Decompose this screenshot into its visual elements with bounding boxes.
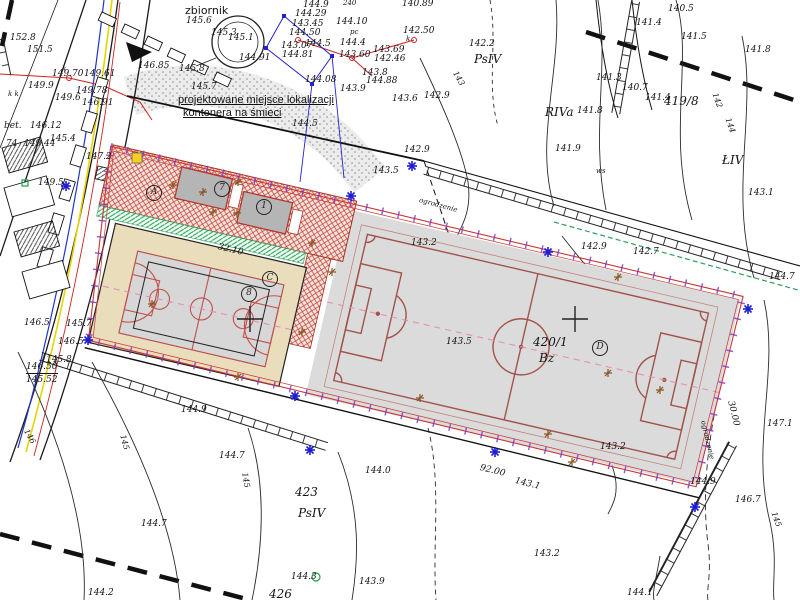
survey-point-icon	[61, 181, 71, 191]
survey-point-icon	[743, 304, 753, 314]
tank-outline	[212, 16, 264, 68]
boundary-thick-dashed	[0, 534, 250, 600]
tree-icon	[568, 458, 576, 466]
survey-point-icon	[543, 247, 553, 257]
map-drawing	[0, 0, 800, 600]
survey-point-icon	[305, 445, 315, 455]
survey-point-icon	[690, 502, 700, 512]
sports-complex	[63, 144, 746, 497]
survey-map: projektowane miejsce lokalizacji kontene…	[0, 0, 800, 600]
green-circle-icon	[312, 573, 320, 581]
survey-point-icon	[290, 391, 300, 401]
yellow-square-icon	[132, 153, 142, 163]
survey-point-icon	[407, 161, 417, 171]
survey-point-icon	[83, 335, 93, 345]
survey-point-icon	[490, 447, 500, 457]
survey-point-icon	[346, 191, 356, 201]
